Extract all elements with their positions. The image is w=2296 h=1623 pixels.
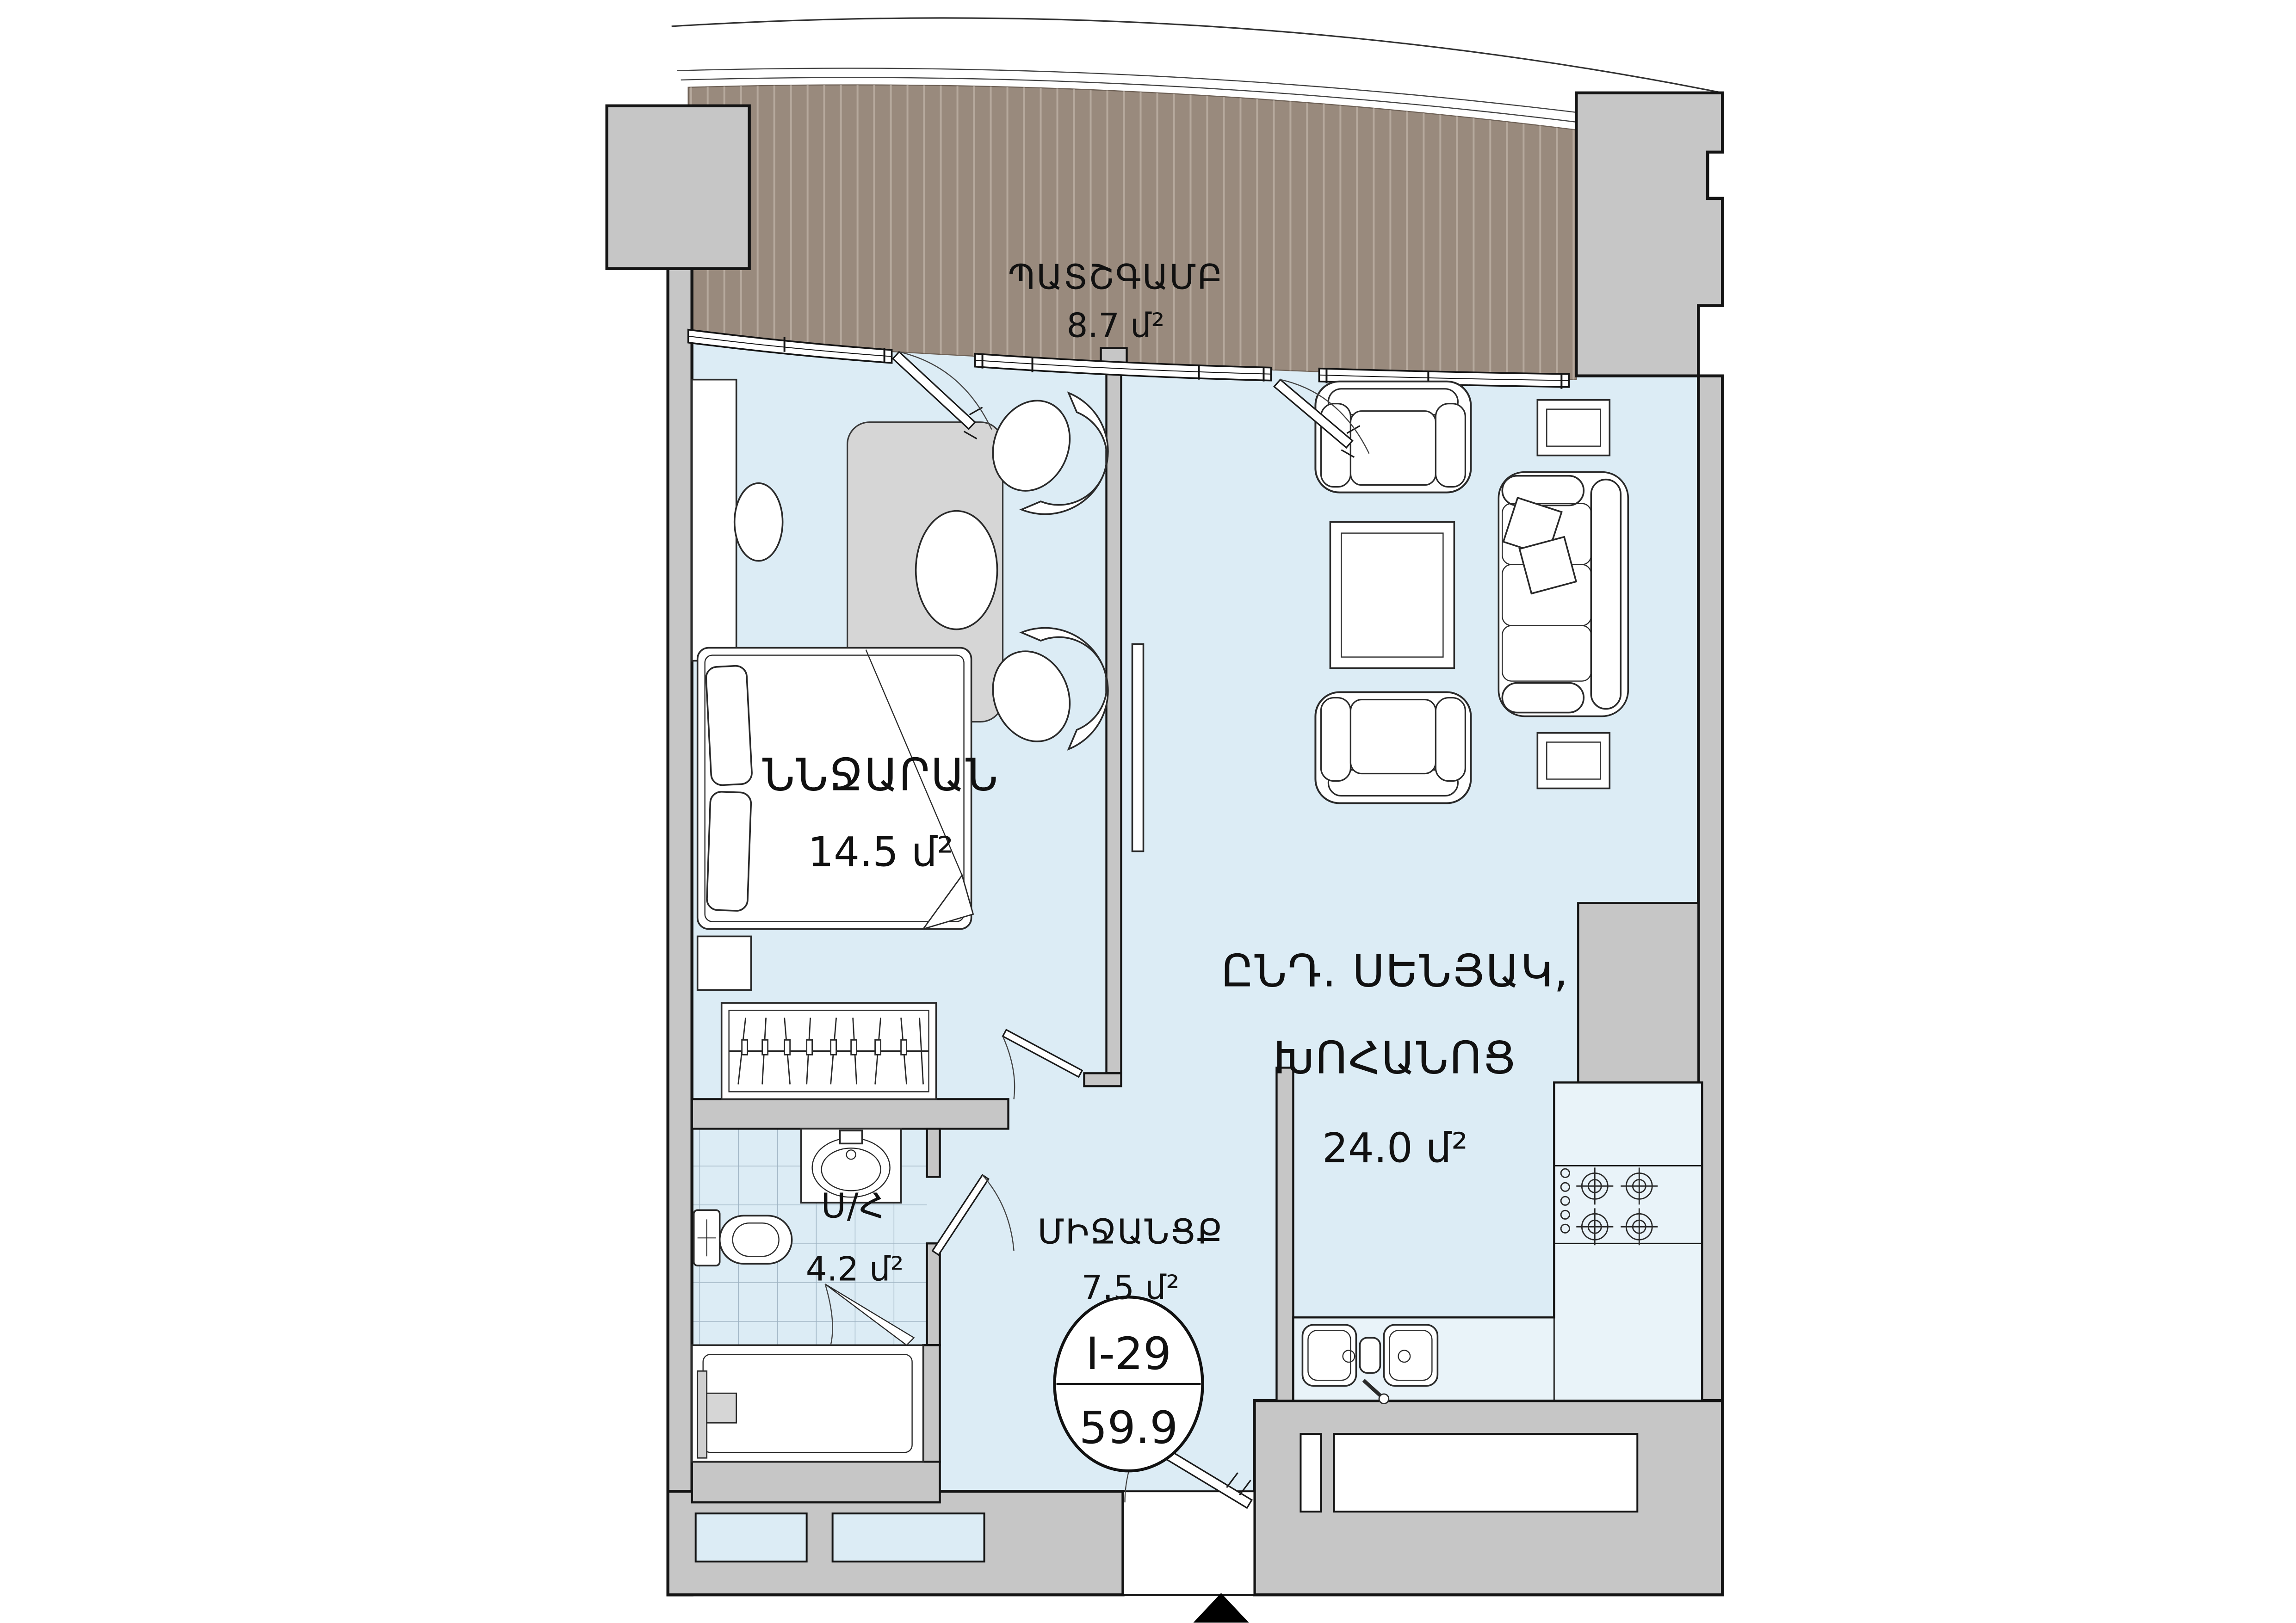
- roof-edge-curve: [672, 18, 1723, 93]
- sofa: [1498, 472, 1628, 716]
- wall-bathroom-right-upper: [927, 1129, 940, 1177]
- pillar-top-right: [1576, 93, 1722, 376]
- badge-unit-number: I-29: [1086, 1328, 1171, 1380]
- shower-head: [707, 1393, 736, 1423]
- bath-window-1: [696, 1513, 807, 1561]
- label-hallway-name: ՄԻՋԱՆՑՔ: [1037, 1212, 1223, 1252]
- nightstand: [698, 936, 751, 990]
- side-table-top: [1537, 400, 1609, 456]
- wall-bathroom-right-lower: [927, 1243, 940, 1345]
- sink-tap: [1379, 1394, 1389, 1404]
- pillow-2: [706, 791, 751, 911]
- wall-left: [668, 269, 692, 1595]
- wardrobe: [722, 1003, 936, 1099]
- label-living-name-line2: ԽՈՀԱՆՈՑ: [1273, 1032, 1517, 1084]
- badge-total-area: 59.9: [1079, 1402, 1178, 1454]
- wall-hall-kitchen: [1276, 1068, 1293, 1401]
- round-table: [916, 511, 997, 629]
- wall-shower-right: [923, 1345, 940, 1462]
- armchair-bottom: [1315, 692, 1471, 803]
- toilet: [694, 1210, 792, 1265]
- shower-column: [698, 1371, 707, 1458]
- entrance-marker-triangle: [1193, 1593, 1249, 1623]
- desk: [692, 380, 736, 661]
- label-bathroom-area: 4.2 մ²: [806, 1249, 904, 1288]
- label-bathroom-name: Ս/Հ: [821, 1186, 885, 1226]
- entrance-threshold: [1123, 1491, 1255, 1595]
- label-bedroom-area: 14.5 մ²: [808, 828, 953, 876]
- coffee-table: [1330, 522, 1454, 668]
- floor-plan-canvas: I-29 59.9 ՊԱՏՇԳԱՄԲ 8.7 մ² ՆՆՋԱՐԱՆ 14.5 մ…: [0, 0, 2296, 1623]
- wall-wardrobe-band: [692, 1099, 1009, 1129]
- sink-faucet: [840, 1130, 862, 1143]
- wall-bedroom-door-jamb: [1084, 1073, 1121, 1086]
- floor-plan-page: I-29 59.9 ՊԱՏՇԳԱՄԲ 8.7 մ² ՆՆՋԱՐԱՆ 14.5 մ…: [0, 0, 2296, 1623]
- sofa-arm-top: [1502, 476, 1584, 506]
- unit-badge: I-29 59.9: [1055, 1297, 1203, 1471]
- label-living-name-line1: ԸՆԴ. ՍԵՆՅԱԿ,: [1221, 945, 1569, 997]
- label-living-area: 24.0 մ²: [1322, 1124, 1468, 1172]
- desk-chair: [735, 483, 783, 561]
- wall-bedroom-living: [1107, 352, 1121, 1074]
- sofa-arm-bottom: [1502, 683, 1584, 713]
- kitchen-window-small: [1300, 1434, 1321, 1512]
- tv-panel: [1133, 644, 1144, 852]
- kitchen-column: [1578, 903, 1698, 1082]
- pillar-top-left: [607, 106, 749, 269]
- side-table-bottom: [1537, 733, 1609, 789]
- label-balcony-area: 8.7 մ²: [1067, 306, 1165, 345]
- wall-under-shower: [692, 1462, 940, 1502]
- label-hallway-area: 7.5 մ²: [1082, 1268, 1180, 1307]
- sofa-back: [1591, 480, 1621, 709]
- label-bedroom-name: ՆՆՋԱՐԱՆ: [762, 749, 999, 801]
- bath-window-2: [833, 1513, 984, 1561]
- pillow-1: [706, 665, 752, 785]
- kitchen-window-large: [1334, 1434, 1637, 1512]
- balcony-zone: [672, 18, 1723, 385]
- label-balcony-name: ՊԱՏՇԳԱՄԲ: [1008, 258, 1223, 297]
